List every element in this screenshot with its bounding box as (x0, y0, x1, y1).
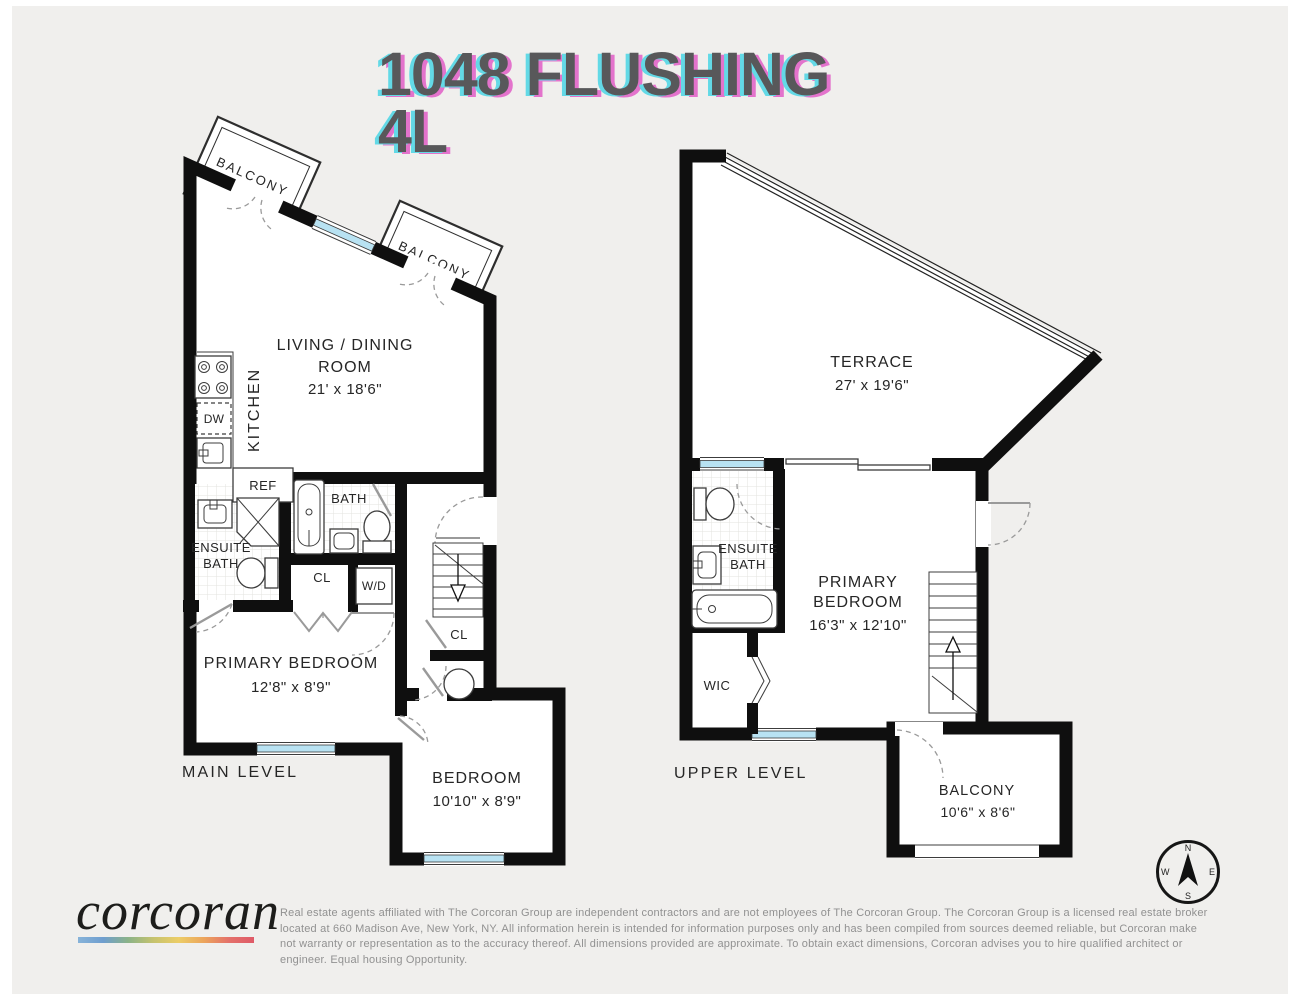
upper-ensuite-label-1: ENSUITE (718, 541, 778, 556)
living-dining-dims: 21' x 18'6" (308, 381, 382, 398)
living-dining-label-2: ROOM (318, 359, 372, 376)
dishwasher-icon: DW (197, 403, 231, 434)
ensuite-label-2: BATH (203, 556, 239, 571)
bedroom-dims: 10'10" x 8'9" (433, 793, 522, 810)
upper-primary-label-2: BEDROOM (813, 594, 903, 611)
upper-entry-door-arc (988, 503, 1030, 545)
upper-level-plan: ENSUITE BATH (674, 153, 1101, 859)
main-primary-window (257, 741, 335, 756)
washer-dryer-label: W/D (362, 579, 386, 593)
wic-label: WIC (704, 678, 731, 693)
main-level-caption: MAIN LEVEL (182, 764, 298, 781)
floorplan-page: 1048 FLUSHING 4L BALCONY BALCONY (0, 0, 1294, 1000)
upper-bathtub-icon (692, 590, 777, 628)
living-dining-label-1: LIVING / DINING (277, 337, 414, 354)
upper-ensuite-bath: ENSUITE BATH (692, 471, 782, 628)
column-icon (444, 669, 474, 699)
upper-sink-icon (693, 546, 721, 584)
terrace-label: TERRACE (830, 354, 913, 371)
bath-sink-icon (330, 529, 358, 553)
upper-primary-window (752, 727, 816, 742)
upper-stairs (929, 572, 977, 713)
kitchen-label: KITCHEN (246, 368, 263, 452)
bath-toilet-icon (363, 511, 391, 553)
terrace-dims: 27' x 19'6" (835, 377, 909, 394)
bedroom-label: BEDROOM (432, 770, 522, 787)
compass-rose: N E S W (1156, 840, 1220, 904)
upper-level-caption: UPPER LEVEL (674, 765, 808, 782)
bath-label: BATH (331, 491, 367, 506)
stove-icon (195, 356, 231, 398)
ref-label: REF (249, 478, 277, 493)
upper-ensuite-label-2: BATH (730, 557, 766, 572)
upper-primary-label-1: PRIMARY (818, 574, 898, 591)
kitchen-sink-icon (197, 438, 231, 468)
compass-n: N (1185, 843, 1192, 853)
legal-disclaimer: Real estate agents affiliated with The C… (280, 906, 1212, 968)
compass-e: E (1209, 867, 1215, 877)
compass-w: W (1161, 867, 1170, 877)
ensuite-label-1: ENSUITE (191, 540, 251, 555)
upper-primary-dims: 16'3" x 12'10" (809, 617, 907, 634)
main-primary-bedroom-dims: 12'8" x 8'9" (251, 679, 331, 696)
closet-stairs-label: CL (450, 627, 468, 642)
corcoran-logo: corcoran (76, 880, 280, 942)
ensuite-toilet-icon (237, 558, 278, 588)
terrace-sliding-door (784, 456, 932, 472)
shower-icon (237, 498, 279, 546)
refrigerator-icon: REF (233, 468, 293, 502)
dw-label: DW (204, 412, 225, 426)
main-level-plan: BALCONY BALCONY (182, 117, 559, 866)
upper-balcony: BALCONY 10'6" x 8'6" (893, 722, 1066, 859)
main-stairs (433, 538, 483, 617)
main-primary-bedroom-label: PRIMARY BEDROOM (204, 655, 378, 672)
upper-ensuite-window (700, 456, 764, 472)
brand-gradient-bar (78, 937, 254, 943)
upper-balcony-label: BALCONY (939, 783, 1015, 799)
compass-s: S (1185, 891, 1191, 901)
main-bedroom-window (424, 851, 504, 866)
upper-balcony-dims: 10'6" x 8'6" (941, 804, 1016, 820)
closet-label: CL (313, 570, 331, 585)
floorplan-drawing: BALCONY BALCONY (0, 0, 1294, 1000)
upper-toilet-icon (694, 488, 734, 520)
bathtub-icon (294, 480, 324, 554)
ensuite-sink-icon (198, 500, 232, 528)
